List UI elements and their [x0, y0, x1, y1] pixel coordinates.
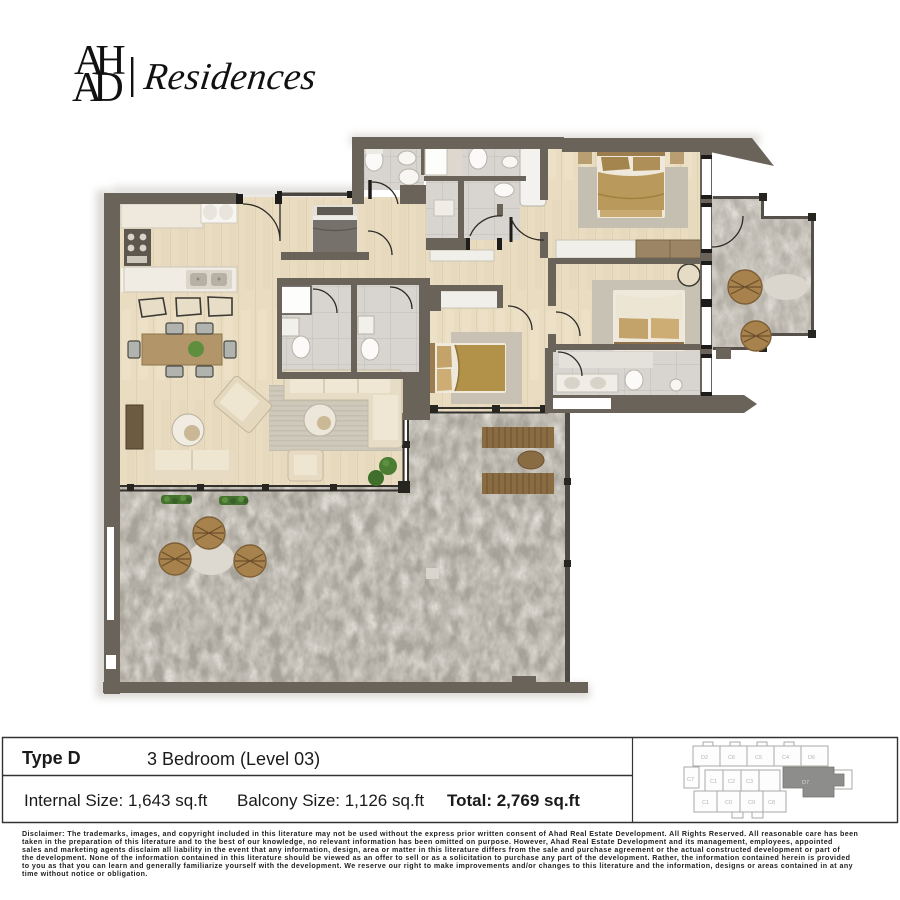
svg-text:C7: C7 — [687, 777, 694, 783]
svg-text:Balcony Size: 1,126 sq.ft: Balcony Size: 1,126 sq.ft — [237, 791, 424, 810]
svg-text:C3: C3 — [746, 779, 753, 785]
svg-text:Residences: Residences — [141, 56, 319, 98]
svg-text:C5: C5 — [755, 755, 762, 761]
svg-text:sales and marketing agents dis: sales and marketing agents disclaim all … — [22, 846, 840, 854]
svg-text:C2: C2 — [728, 779, 735, 785]
svg-text:C8: C8 — [768, 800, 775, 806]
svg-text:C9: C9 — [748, 800, 755, 806]
svg-text:D2: D2 — [701, 755, 708, 761]
svg-text:D7: D7 — [802, 780, 809, 786]
svg-text:C0: C0 — [725, 800, 732, 806]
svg-text:C1: C1 — [702, 800, 709, 806]
svg-text:taken in the preparation of th: taken in the preparation of this literat… — [22, 838, 833, 846]
svg-text:Disclaimer: The trademarks, im: Disclaimer: The trademarks, images, and … — [22, 830, 858, 838]
svg-text:Internal Size: 1,643 sq.ft: Internal Size: 1,643 sq.ft — [24, 791, 208, 810]
svg-text:to you as that you can learn a: to you as that you can learn and general… — [22, 862, 853, 870]
svg-text:C6: C6 — [728, 755, 735, 761]
svg-text:D6: D6 — [808, 755, 815, 761]
svg-text:3 Bedroom (Level 03): 3 Bedroom (Level 03) — [147, 749, 320, 769]
svg-text:time without notice or obligat: time without notice or obligation. — [22, 870, 148, 878]
svg-text:Total: 2,769 sq.ft: Total: 2,769 sq.ft — [447, 791, 580, 810]
svg-text:Type D: Type D — [22, 748, 81, 768]
svg-text:C4: C4 — [782, 755, 789, 761]
svg-text:the development. None of the i: the development. None of the information… — [22, 854, 850, 862]
svg-text:C1: C1 — [710, 779, 717, 785]
